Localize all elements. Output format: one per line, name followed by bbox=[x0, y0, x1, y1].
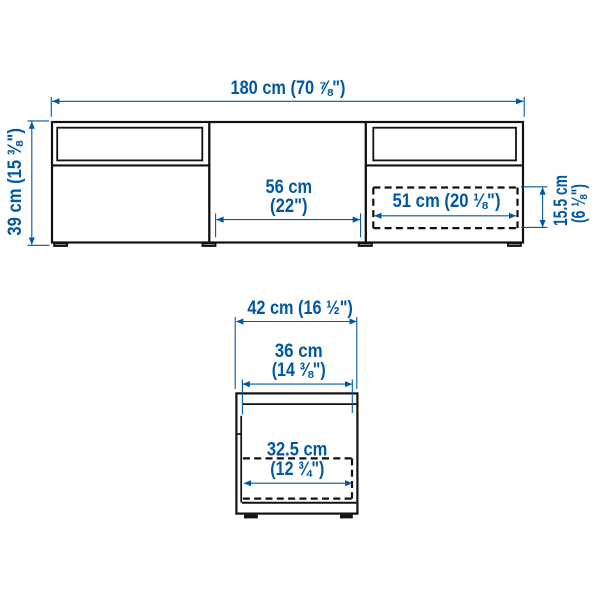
svg-text:180 cm (70 ⅞"): 180 cm (70 ⅞") bbox=[231, 78, 346, 99]
svg-text:39 cm (15 ⅜"): 39 cm (15 ⅜") bbox=[5, 128, 26, 236]
svg-text:(12 ¾"): (12 ¾") bbox=[270, 459, 324, 480]
svg-text:(22"): (22") bbox=[270, 196, 308, 217]
svg-text:32.5 cm: 32.5 cm bbox=[267, 439, 328, 460]
svg-text:(6 ⅛"): (6 ⅛") bbox=[569, 184, 590, 223]
svg-text:42 cm (16 ½"): 42 cm (16 ½") bbox=[247, 298, 353, 319]
svg-text:(14 ⅜"): (14 ⅜") bbox=[272, 360, 326, 381]
svg-text:36 cm: 36 cm bbox=[275, 341, 323, 362]
svg-text:51 cm (20 ⅛"): 51 cm (20 ⅛") bbox=[393, 191, 501, 212]
